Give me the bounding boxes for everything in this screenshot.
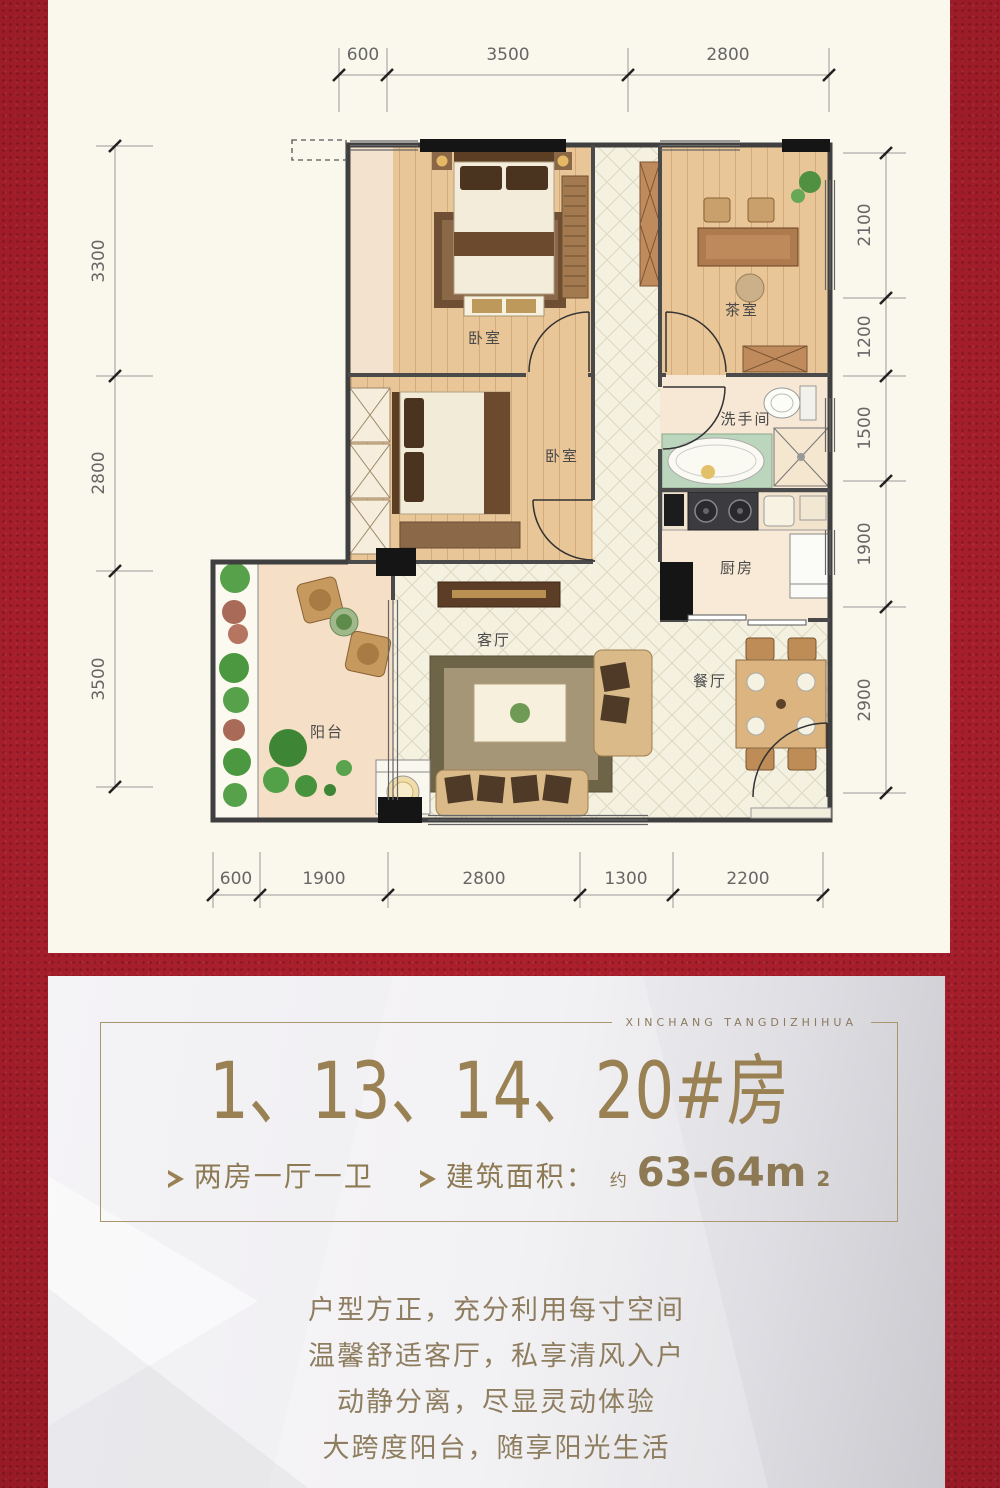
chair: [704, 198, 730, 222]
floor-plan-svg: 600 3500 2800 600 1900 2800 1300 2200 33…: [48, 0, 950, 953]
description-line: 大跨度阳台，随享阳光生活: [48, 1426, 945, 1472]
feature-area: 建筑面积： 约 63-64m 2: [420, 1150, 831, 1196]
sliding-door: [688, 615, 746, 620]
sink-icon: [764, 496, 794, 526]
plant-icon: [799, 171, 821, 193]
area-superscript: 2: [816, 1167, 830, 1191]
info-card: XINCHANG TANGDIZHIHUA 1、13、14、20#房 两房一厅一…: [48, 976, 945, 1488]
brand-text: XINCHANG TANGDIZHIHUA: [626, 1016, 858, 1029]
flue-box: [292, 140, 346, 160]
area-label: 建筑面积：: [446, 1155, 596, 1195]
description-line: 温馨舒适客厅，私享清风入户: [48, 1334, 945, 1380]
label-balcony: 阳台: [310, 723, 344, 741]
fridge-icon: [790, 534, 830, 598]
rug: [400, 522, 520, 548]
dim-right-1: 1200: [855, 315, 875, 358]
label-living: 客厅: [477, 631, 511, 649]
arrow-icon: [420, 1170, 436, 1188]
description-line: 动静分离，尽显灵动体验: [48, 1380, 945, 1426]
lamp-icon: [436, 155, 448, 167]
chair: [788, 638, 816, 660]
label-kitchen: 厨房: [720, 559, 754, 577]
lamp-icon: [557, 155, 569, 167]
unit-title: 1、13、14、20#房: [181, 1042, 818, 1142]
page: 600 3500 2800 600 1900 2800 1300 2200 33…: [0, 0, 1000, 1488]
bed-headboard: [392, 392, 400, 514]
dim-top-2: 2800: [706, 45, 749, 65]
dim-bottom-0: 600: [220, 869, 252, 889]
area-approx: 约: [610, 1166, 627, 1191]
frame-top-border: XINCHANG TANGDIZHIHUA: [101, 1014, 897, 1030]
sliding-door: [748, 620, 806, 625]
description: 户型方正，充分利用每寸空间 温馨舒适客厅，私享清风入户 动静分离，尽显灵动体验 …: [48, 1288, 945, 1472]
dim-left-2: 3500: [89, 657, 109, 700]
dim-right-2: 1500: [855, 406, 875, 449]
dim-left-1: 2800: [89, 451, 109, 494]
floorplan-panel: 600 3500 2800 600 1900 2800 1300 2200 33…: [48, 0, 950, 953]
chair: [788, 748, 816, 770]
feature-layout: 两房一厅一卫: [168, 1155, 374, 1195]
dim-left-0: 3300: [89, 239, 109, 282]
frame-line: [101, 1022, 612, 1023]
dim-top-1: 3500: [486, 45, 529, 65]
dim-right-3: 1900: [855, 522, 875, 565]
stool: [736, 274, 764, 302]
label-bedroom1: 卧室: [468, 329, 502, 347]
dim-bottom-4: 2200: [726, 869, 769, 889]
chair: [748, 198, 774, 222]
label-washroom: 洗手间: [720, 410, 771, 428]
wardrobe: [562, 176, 588, 298]
layout-text: 两房一厅一卫: [194, 1155, 374, 1195]
dim-bottom-1: 1900: [302, 869, 345, 889]
title-frame: XINCHANG TANGDIZHIHUA 1、13、14、20#房 两房一厅一…: [100, 1022, 898, 1222]
plant-icon: [269, 729, 307, 767]
description-line: 户型方正，充分利用每寸空间: [48, 1288, 945, 1334]
entry-threshold: [751, 808, 831, 818]
bedroom2-furniture: [350, 388, 520, 554]
area-value: 63-64m: [637, 1150, 807, 1196]
label-bedroom2: 卧室: [545, 447, 579, 465]
dim-bottom-2: 2800: [462, 869, 505, 889]
dim-right-0: 2100: [855, 203, 875, 246]
chair: [746, 638, 774, 660]
label-tearoom: 茶室: [725, 301, 759, 319]
arrow-icon: [168, 1170, 184, 1188]
dim-bottom-3: 1300: [604, 869, 647, 889]
dim-right-4: 2900: [855, 678, 875, 721]
label-dining: 餐厅: [693, 672, 727, 690]
feature-row: 两房一厅一卫 建筑面积： 约 63-64m 2: [101, 1150, 897, 1196]
hall-cabinet: [640, 162, 660, 286]
dim-top-0: 600: [347, 45, 379, 65]
frame-line: [871, 1022, 897, 1023]
